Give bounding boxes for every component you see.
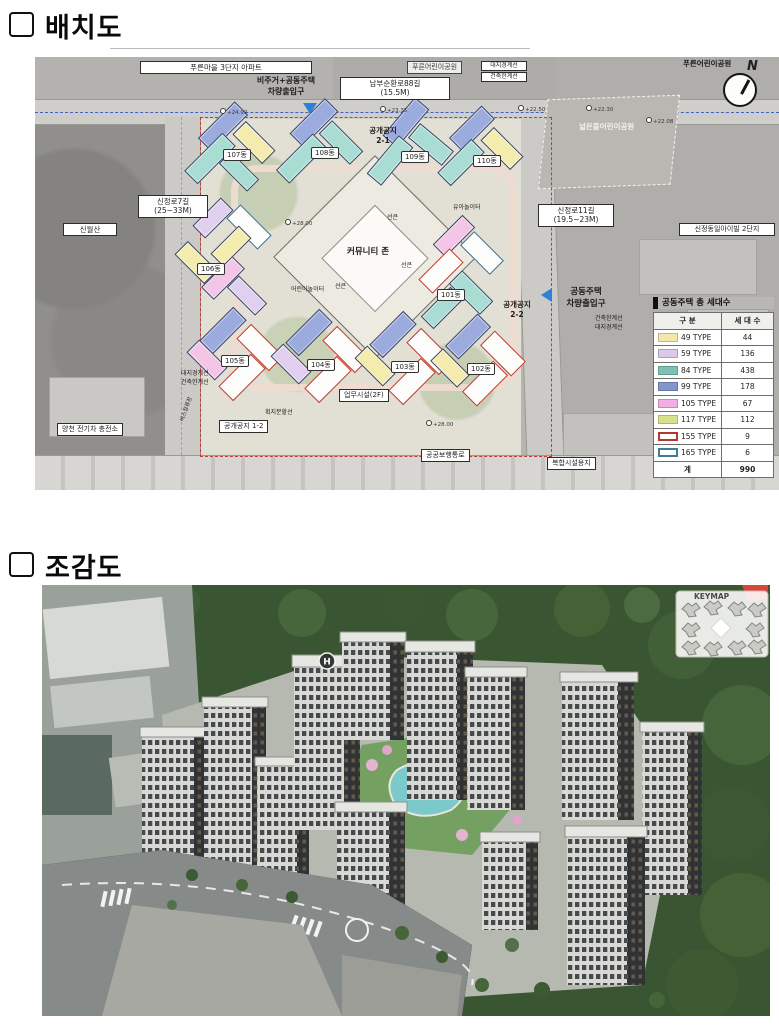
swatch-117 xyxy=(658,415,678,424)
building-label: 109동 xyxy=(401,151,429,163)
birdseye-title: 조감도 xyxy=(45,546,123,585)
label-boundary-left: 대지경계선건축한계선 xyxy=(181,368,209,386)
footer-space xyxy=(0,1016,779,1026)
legend-total-row: 계 990 xyxy=(654,461,774,478)
label-sunken3: 선큰 xyxy=(335,281,346,290)
helipad-letter: H xyxy=(323,658,331,668)
elev-marker: +22.30 xyxy=(586,105,613,113)
keymap: KEYMAP xyxy=(676,585,768,657)
tower xyxy=(640,722,704,895)
legend-row: 49 TYPE 44 xyxy=(654,329,774,346)
building-label: 104동 xyxy=(307,359,335,371)
checkbox-icon xyxy=(9,12,34,37)
legend-col1: 구 분 xyxy=(654,313,722,330)
label-lot-line: 획지분할선 xyxy=(265,407,293,416)
label-open12: 공개공지 1-2 xyxy=(219,420,268,433)
building-label: 101동 xyxy=(437,289,465,301)
elev-marker: +24.92 xyxy=(220,108,247,116)
legend-title: 공동주택 총 세대수 xyxy=(653,297,774,309)
entry-arrow-icon xyxy=(303,103,317,114)
compass-icon xyxy=(723,73,757,107)
label-open22: 공개공지2-2 xyxy=(493,299,541,319)
swatch-99 xyxy=(658,382,678,391)
tower xyxy=(480,832,540,930)
swatch-165 xyxy=(658,448,678,457)
label-ev-station: 양천 전기차 충전소 xyxy=(57,423,123,436)
legend-row: 155 TYPE 9 xyxy=(654,428,774,445)
page: { "titles": { "section1": "배치도", "sectio… xyxy=(0,0,779,1026)
swatch-105 xyxy=(658,399,678,408)
label-open21: 공개공지2-1 xyxy=(357,125,409,145)
siteplan-title: 배치도 xyxy=(45,6,123,45)
label-boundary-build: 건축한계선 xyxy=(481,72,527,82)
label-park-wide: 넓은뜰어린이공원 xyxy=(579,121,634,132)
label-community: 커뮤니티 존 xyxy=(347,245,389,257)
building-cluster-106[interactable]: 106동 xyxy=(171,207,287,323)
legend-row: 59 TYPE 136 xyxy=(654,346,774,363)
label-road-s88: 남부순환로88길(15.5M) xyxy=(340,77,450,100)
label-boundary-site: 대지경계선 xyxy=(481,61,527,71)
elev-marker: +23.35 xyxy=(380,106,407,114)
building-label: 102동 xyxy=(467,363,495,375)
tower xyxy=(560,672,638,820)
birdseye-render[interactable]: H KEYMAP xyxy=(42,585,770,1016)
label-sunken1: 선큰 xyxy=(387,212,398,221)
label-sunken2: 선큰 xyxy=(401,260,412,269)
legend: 공동주택 총 세대수 구 분 세 대 수 49 TYPE 44 59 TYPE … xyxy=(653,297,774,478)
legend-row: 117 TYPE 112 xyxy=(654,412,774,429)
elev-marker: +28.00 xyxy=(426,420,453,428)
building-label: 105동 xyxy=(221,355,249,367)
divider xyxy=(110,48,530,49)
label-boundary-right: 건축한계선대지경계선 xyxy=(595,313,623,331)
legend-table: 구 분 세 대 수 49 TYPE 44 59 TYPE 136 84 TYPE… xyxy=(653,312,774,478)
building-label: 103동 xyxy=(391,361,419,373)
tower xyxy=(405,641,475,800)
label-park-blue: 푸른어린이공원 xyxy=(683,58,731,69)
keymap-title: KEYMAP xyxy=(694,592,730,601)
label-complex-site: 복합시설용지 xyxy=(547,457,596,470)
label-toddler-play: 유아놀이터 xyxy=(453,202,481,211)
label-road-s7: 신정로7길(25~33M) xyxy=(138,195,208,218)
legend-row: 84 TYPE 438 xyxy=(654,362,774,379)
label-mountain: 신월산 xyxy=(63,223,117,236)
swatch-155 xyxy=(658,432,678,441)
compass-n-label: N xyxy=(747,59,758,74)
building-label: 106동 xyxy=(197,263,225,275)
label-complex3: 푸른마을 3단지 아파트 xyxy=(140,61,312,74)
label-office: 업무시설(2F) xyxy=(339,389,389,402)
elev-marker: +22.50 xyxy=(518,105,545,113)
swatch-49 xyxy=(658,333,678,342)
tower xyxy=(340,632,406,740)
label-ivill: 신정동일아이빌 2단지 xyxy=(679,223,775,236)
section-siteplan-header: 배치도 xyxy=(0,8,779,52)
legend-row: 105 TYPE 67 xyxy=(654,395,774,412)
building-label: 110동 xyxy=(473,155,501,167)
building-label: 107동 xyxy=(223,149,251,161)
building-cluster-110[interactable]: 110동 xyxy=(433,117,537,213)
entry-arrow-icon xyxy=(541,288,552,302)
legend-row: 165 TYPE 6 xyxy=(654,445,774,462)
label-park-blue2: 푸른어린이공원 xyxy=(407,61,462,74)
birdseye-svg: H KEYMAP xyxy=(42,585,770,1016)
legend-col2: 세 대 수 xyxy=(722,313,774,330)
label-kids-play: 어린이놀이터 xyxy=(291,284,324,293)
legend-row: 99 TYPE 178 xyxy=(654,379,774,396)
label-entry-apt: 공동주택차량출입구 xyxy=(555,285,617,309)
tower xyxy=(465,667,527,810)
checkbox-icon xyxy=(9,552,34,577)
swatch-84 xyxy=(658,366,678,375)
building-cluster-102[interactable]: 102동 xyxy=(429,325,541,425)
site-plan-map[interactable]: 107동 108동 109동 110동 106동 101동 xyxy=(35,57,779,490)
label-walkway: 공공보행통로 xyxy=(421,449,470,462)
building-label: 108동 xyxy=(311,147,339,159)
swatch-59 xyxy=(658,349,678,358)
existing-building xyxy=(639,239,757,295)
label-entry-mixed: 비주거+공동주택차량출입구 xyxy=(231,75,341,97)
elev-marker: +28.00 xyxy=(285,219,312,227)
label-road-s11: 신정로11길(19.5~23M) xyxy=(538,204,614,227)
elev-marker: +22.08 xyxy=(646,117,673,125)
tower xyxy=(565,826,647,985)
